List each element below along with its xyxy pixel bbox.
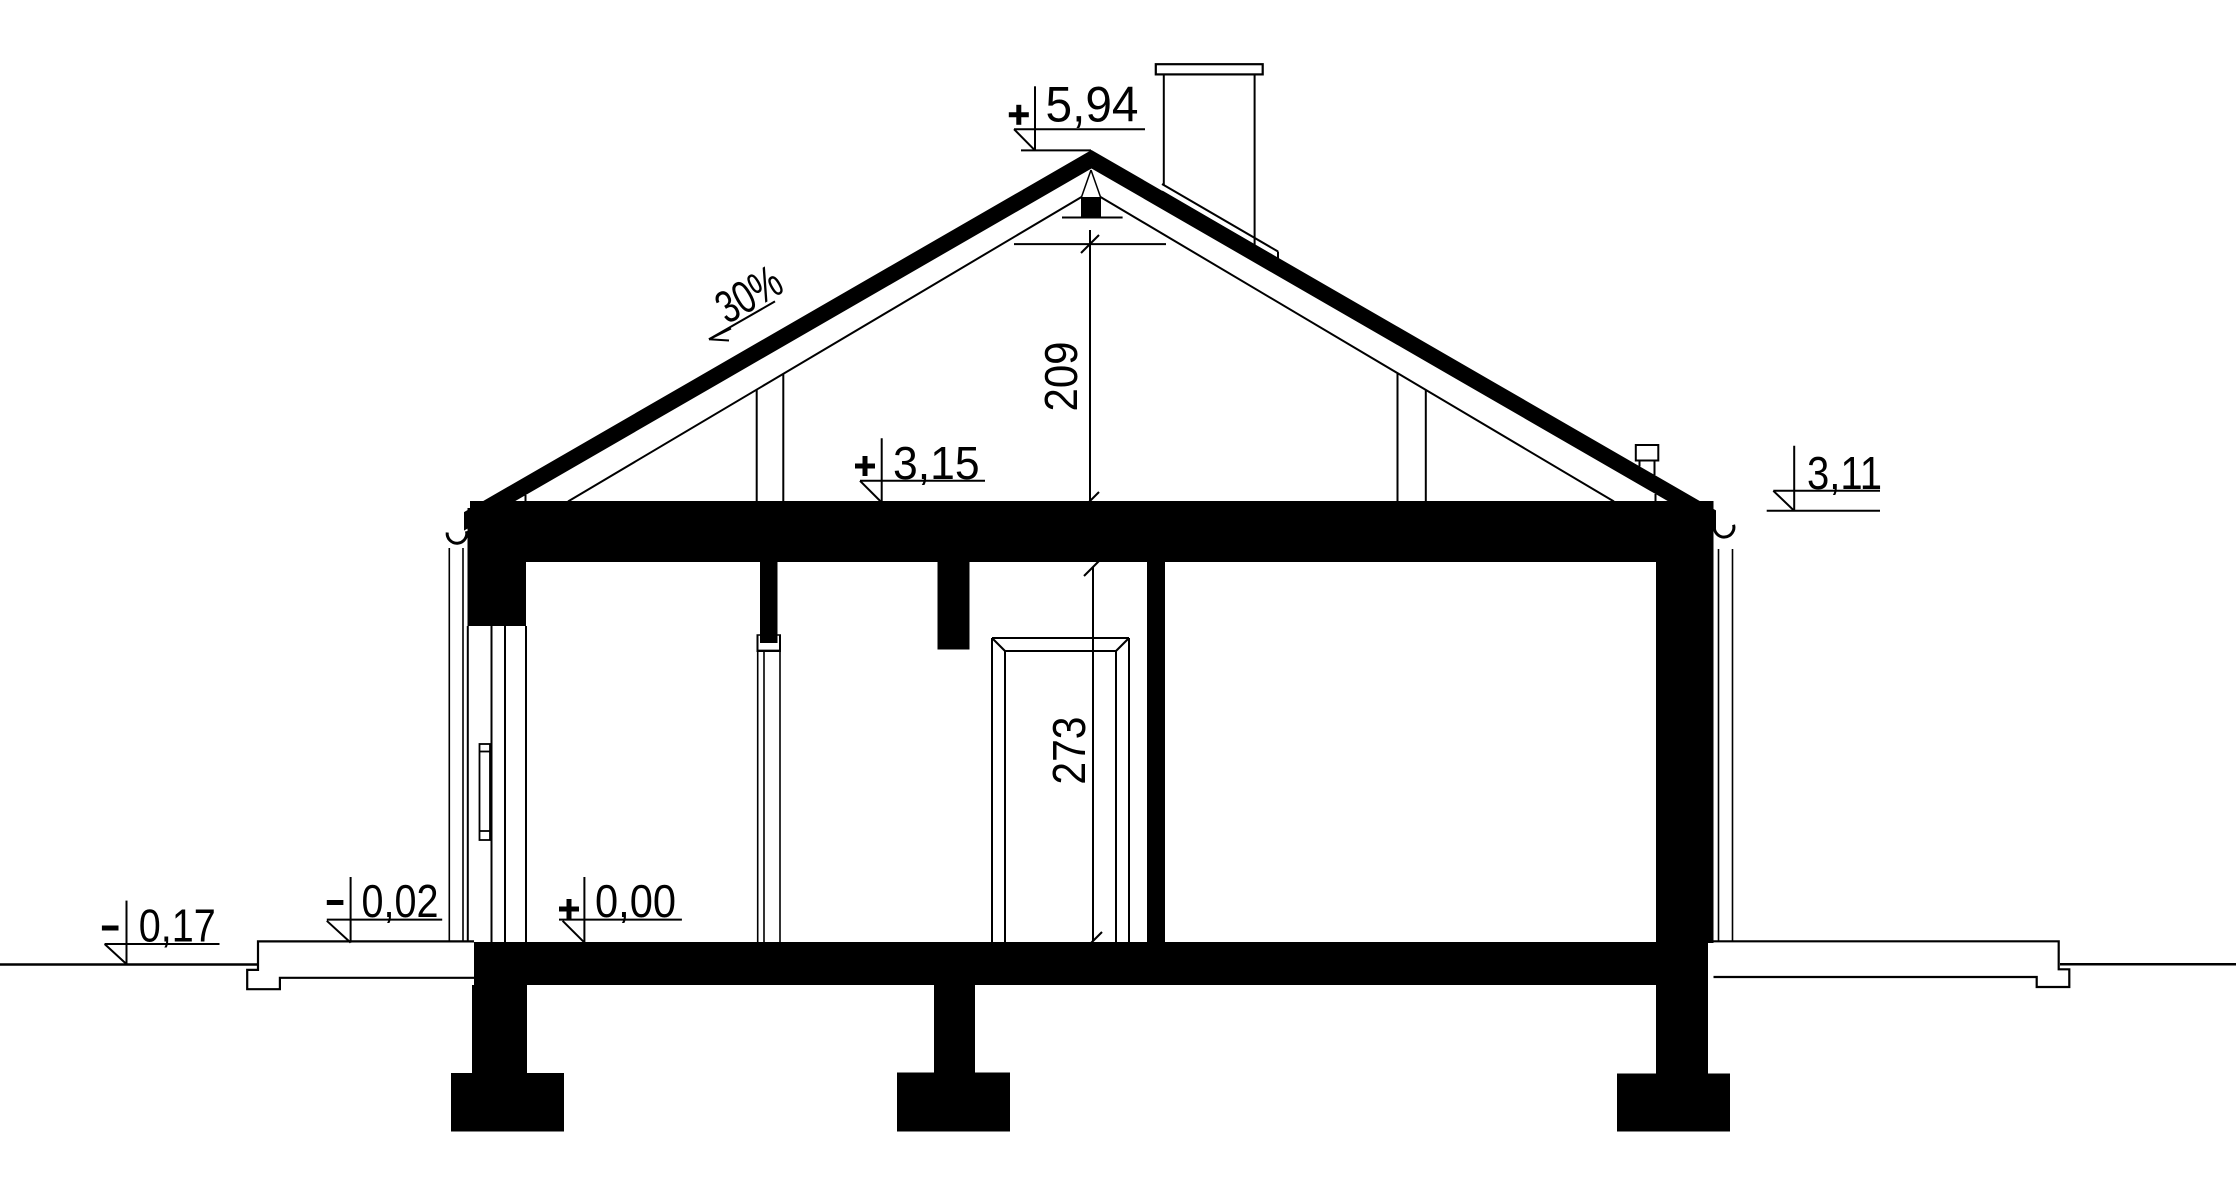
svg-text:273: 273 (1043, 717, 1095, 785)
svg-text:3,11: 3,11 (1807, 447, 1882, 499)
svg-text:5,94: 5,94 (1046, 77, 1139, 133)
svg-text:3,15: 3,15 (893, 437, 980, 489)
svg-text:0,00: 0,00 (595, 875, 676, 927)
svg-text:0,02: 0,02 (362, 875, 439, 927)
svg-text:209: 209 (1035, 342, 1087, 412)
svg-text:0,17: 0,17 (139, 900, 216, 952)
